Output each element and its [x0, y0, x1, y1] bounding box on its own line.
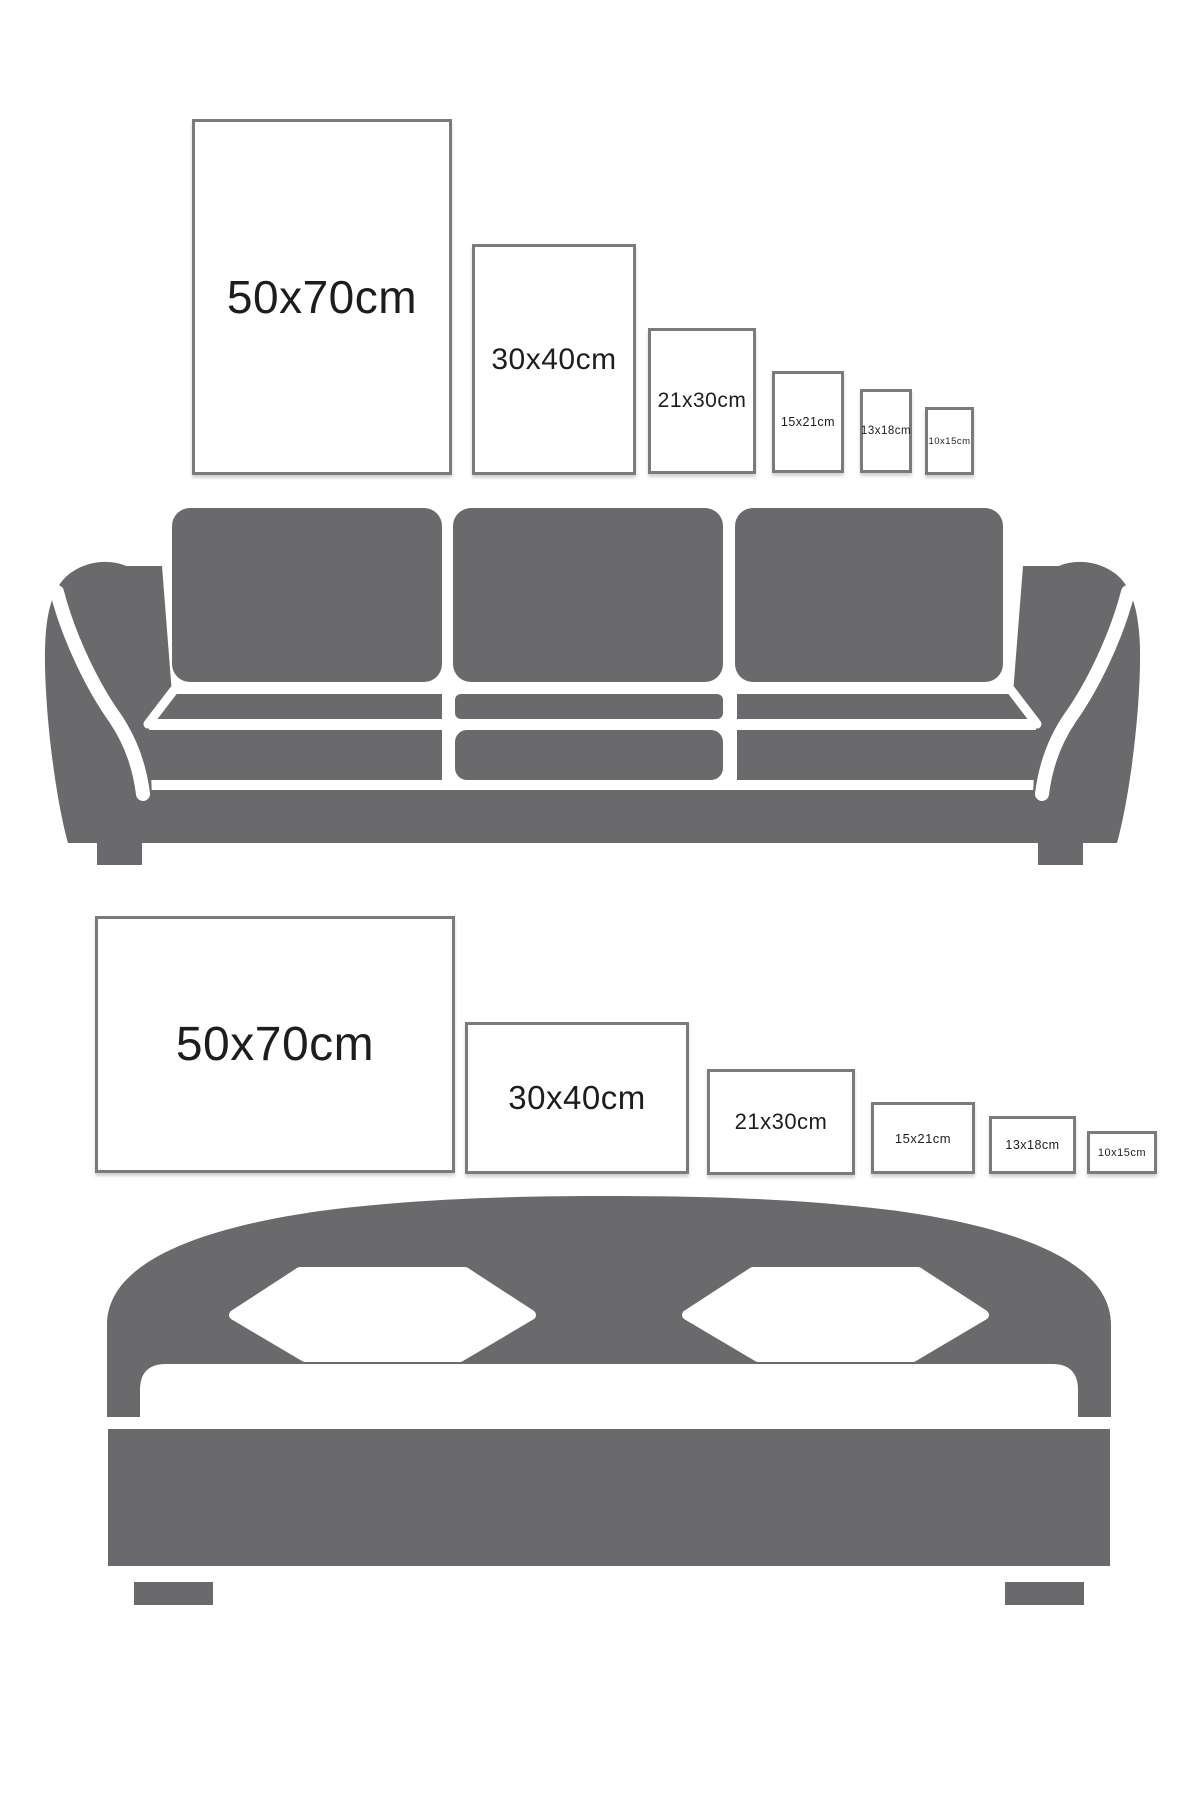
size-label-15x21: 15x21cm: [895, 1131, 951, 1146]
sofa-seat-cushion-front: [134, 730, 1051, 780]
sofa-arm-seam-right: [1042, 592, 1128, 794]
sofa-arm-left: [45, 562, 172, 843]
size-label-30x40: 30x40cm: [508, 1079, 645, 1117]
bed-pillow-left: [234, 1272, 531, 1357]
sofa-arm-right: [1013, 562, 1140, 843]
bed-illustration: [100, 1190, 1120, 1610]
size-label-13x18: 13x18cm: [861, 425, 911, 437]
sofa-illustration: [30, 505, 1145, 870]
sofa-deck-seam-right: [1011, 690, 1037, 724]
size-label-10x15: 10x15cm: [928, 436, 970, 447]
size-label-21x30: 21x30cm: [735, 1109, 828, 1135]
size-label-10x15: 10x15cm: [1098, 1147, 1146, 1159]
sofa-base: [92, 790, 1093, 843]
size-label-50x70: 50x70cm: [176, 1017, 374, 1072]
poster-frame-portrait-13x18: 13x18cm: [860, 389, 912, 473]
poster-frame-landscape-30x40: 30x40cm: [465, 1022, 689, 1174]
sofa-foot-left: [97, 843, 142, 865]
size-guide-infographic: 50x70cm 30x40cm 21x30cm 15x21cm 13x18cm …: [0, 0, 1200, 1800]
poster-frame-portrait-15x21: 15x21cm: [772, 371, 844, 473]
bed-base: [108, 1429, 1110, 1566]
bed-foot-left: [134, 1582, 213, 1605]
size-label-30x40: 30x40cm: [491, 343, 616, 377]
sofa-arm-seam-left: [57, 592, 143, 794]
bed-foot-right: [1005, 1582, 1084, 1605]
sofa-back-cushion-right: [735, 508, 1003, 682]
size-label-15x21: 15x21cm: [781, 415, 835, 429]
poster-frame-portrait-10x15: 10x15cm: [925, 407, 974, 475]
bed-headboard: [107, 1196, 1111, 1417]
size-label-50x70: 50x70cm: [227, 270, 417, 324]
size-label-21x30: 21x30cm: [658, 389, 747, 413]
poster-frame-portrait-50x70: 50x70cm: [192, 119, 452, 475]
sofa-back-cushion-left: [172, 508, 442, 682]
poster-frame-portrait-21x30: 21x30cm: [648, 328, 756, 474]
poster-frame-landscape-50x70: 50x70cm: [95, 916, 455, 1173]
size-label-13x18: 13x18cm: [1005, 1138, 1059, 1152]
sofa-deck-seam-left: [148, 690, 174, 724]
sofa-foot-right: [1038, 843, 1083, 865]
poster-frame-portrait-30x40: 30x40cm: [472, 244, 636, 475]
sofa-seat-deck: [154, 694, 1031, 719]
sofa-back-cushion-middle: [453, 508, 723, 682]
poster-frame-landscape-15x21: 15x21cm: [871, 1102, 975, 1174]
poster-frame-landscape-21x30: 21x30cm: [707, 1069, 855, 1175]
poster-frame-landscape-13x18: 13x18cm: [989, 1116, 1076, 1174]
poster-frame-landscape-10x15: 10x15cm: [1087, 1131, 1157, 1174]
bed-pillow-right: [687, 1272, 984, 1357]
